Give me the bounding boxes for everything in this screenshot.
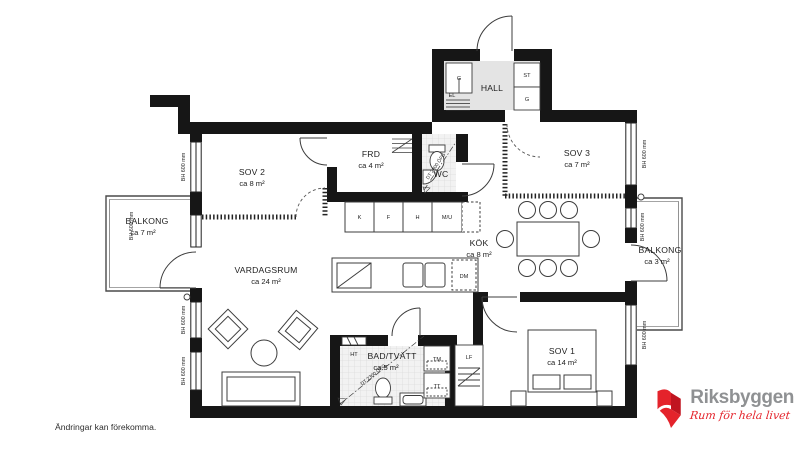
pillow [533,375,560,389]
cabinet-f-label: F [387,215,391,221]
sink-right [425,263,445,287]
window [191,215,201,247]
logo-tagline: Rum för hela livet [690,410,795,421]
sov2-label: SOV 2 [239,167,265,177]
kitchen-island [332,258,478,292]
chair [561,202,578,219]
vardagsrum-label: VARDAGSRUM [235,265,298,275]
chair [583,231,600,248]
vent-mark [184,294,190,300]
balkong-east-label: BALKONG [639,245,682,255]
closet-g2-label: G [525,97,529,103]
dining-table [517,222,579,256]
chair [561,260,578,277]
bh-label: BH 600 mm [640,212,646,241]
bh-label: BH 600 mm [181,356,187,385]
dm-label: DM [460,274,469,280]
sofa-cushions [227,377,295,401]
bathroom-door [392,308,420,336]
window [626,208,636,228]
armchair [208,309,248,349]
cabinet-k-label: K [358,215,362,221]
tt-label: TT [434,384,441,390]
sov3-area: ca 7 m² [564,160,590,169]
logo-name: Riksbyggen [690,388,794,407]
bh-label: BH 600 mm [642,320,648,349]
balkong-east-area: ca 3 m² [644,257,670,266]
nightstand [511,391,526,406]
bh-label: BH 600 mm [642,139,648,168]
sov2-optional-door [296,188,325,217]
cabinet-mu-label: M/U [442,215,452,221]
dining-group [497,202,600,277]
entrance-door [477,16,512,51]
floorplan-page: SOV 2 ca 8 m² FRD ca 4 m² WC HALL SOV 3 … [0,0,810,455]
sov3-label: SOV 3 [564,148,590,158]
floor-plan: SOV 2 ca 8 m² FRD ca 4 m² WC HALL SOV 3 … [0,0,810,455]
window [626,305,636,365]
window [191,142,201,192]
chair [519,260,536,277]
coffee-table [251,340,277,366]
bed-group [511,330,612,406]
armchair [278,310,317,349]
sov3-optional-door [507,124,540,157]
bathroom-toilet-tank [374,397,392,404]
frd-label: FRD [362,149,380,159]
wc-toilet-tank [429,145,445,152]
frd-shelves [392,139,412,153]
ht-label: HT [350,352,358,358]
disclaimer-text: Ändringar kan förekomma. [55,422,156,432]
tm-label: TM [433,357,441,363]
riksbyggen-logo: Riksbyggen Rum för hela livet [653,388,794,432]
el-label: EL [449,93,456,99]
balcony-west-rail-inner [110,200,191,288]
kitchen-cabinets [345,202,480,232]
chair [497,231,514,248]
kitchen-cabinet-dashed [462,202,480,232]
closet-g-label: G [457,76,461,82]
lf-label: LF [466,355,473,361]
sov1-door [482,297,517,332]
livingroom-furniture [208,309,318,406]
chair [540,260,557,277]
frd-door [300,138,327,165]
bh-label: BH 600 mm [181,305,187,334]
bh-label: BH 600 mm [181,152,187,181]
towel-dryer [342,337,366,345]
kok-area: ca 8 m² [466,250,492,259]
bathroom-toilet [376,378,391,398]
vent-mark [638,194,644,200]
window [626,123,636,185]
frd-area: ca 4 m² [358,161,384,170]
vardagsrum-area: ca 24 m² [251,277,281,286]
sink-left [403,263,423,287]
nightstand [597,391,612,406]
wc-door [462,164,494,196]
cabinet-h-label: H [415,215,419,221]
sov1-area: ca 14 m² [547,358,577,367]
sov1-label: SOV 1 [549,346,575,356]
bad-label: BAD/TVÄTT [367,351,417,361]
bh-label: BH 600 mm [129,211,135,240]
chair [540,202,557,219]
balcony-west-rail [106,196,190,291]
riksbyggen-logo-mark [653,388,683,432]
pillow [564,375,591,389]
hall-label: HALL [481,83,503,93]
balcony-west-door [160,252,196,288]
bathroom-sink [403,396,423,405]
window [191,352,201,390]
kok-label: KÖK [470,238,489,248]
window [191,302,201,338]
sov2-area: ca 8 m² [239,179,265,188]
closet-st-label: ST [523,73,531,79]
chair [519,202,536,219]
